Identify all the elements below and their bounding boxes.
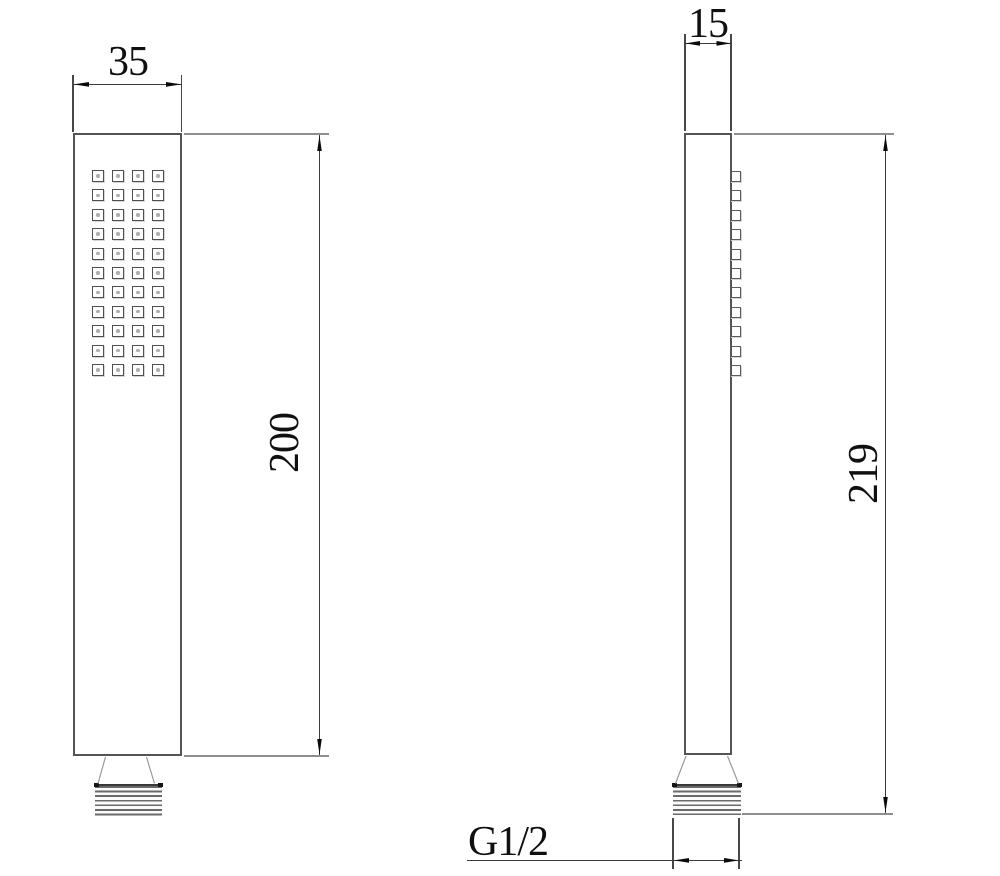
spray-hole (152, 170, 164, 182)
nozzle-square (730, 326, 742, 337)
spray-hole (152, 306, 164, 318)
spray-hole (92, 345, 104, 357)
nozzle-square (730, 287, 742, 298)
spray-hole (132, 364, 144, 376)
spray-hole (92, 267, 104, 279)
extension-line (734, 133, 894, 135)
nozzle-square (730, 365, 742, 376)
spray-hole (92, 170, 104, 182)
front-thread-connector (95, 784, 162, 816)
nozzle-column (730, 171, 742, 376)
spray-hole (152, 345, 164, 357)
extension-line (730, 34, 731, 131)
nozzle-square (730, 171, 742, 182)
spray-hole (152, 267, 164, 279)
spray-hole (152, 364, 164, 376)
dimension-label-thread-spec: G1/2 (468, 821, 598, 863)
spray-grid (92, 170, 164, 376)
extension-line (184, 133, 329, 135)
nozzle-square (730, 268, 742, 279)
extension-line (738, 818, 739, 869)
spray-hole (112, 228, 124, 240)
side-neck-outline (676, 756, 739, 784)
dimension-line-height-front (319, 135, 321, 755)
spray-hole (92, 364, 104, 376)
nozzle-square (730, 190, 742, 201)
spray-hole (152, 209, 164, 221)
spray-hole (132, 325, 144, 337)
side-thread-connector (673, 784, 741, 816)
extension-line (684, 34, 685, 131)
spray-hole (132, 228, 144, 240)
spray-hole (112, 345, 124, 357)
extension-line (184, 755, 329, 757)
spray-hole (132, 189, 144, 201)
dimension-arrowheads (74, 41, 888, 863)
spray-hole (92, 286, 104, 298)
side-view-body (684, 133, 732, 755)
spray-hole (152, 189, 164, 201)
dimension-label-side-depth: 15 (673, 3, 743, 45)
dimension-label-side-height: 219 (843, 434, 885, 514)
spray-hole (152, 248, 164, 260)
nozzle-square (730, 249, 742, 260)
spray-hole (132, 345, 144, 357)
spray-hole (132, 170, 144, 182)
front-neck-outline (98, 757, 155, 784)
spray-hole (92, 306, 104, 318)
dimension-label-front-width: 35 (93, 41, 163, 83)
spray-hole (92, 228, 104, 240)
spray-hole (112, 189, 124, 201)
nozzle-square (730, 210, 742, 221)
technical-drawing-canvas: 35 200 15 219 G1/2 (0, 0, 1000, 876)
spray-hole (152, 228, 164, 240)
nozzle-square (730, 229, 742, 240)
spray-hole (92, 248, 104, 260)
spray-hole (112, 267, 124, 279)
dimension-label-front-height: 200 (264, 403, 306, 483)
spray-hole (132, 248, 144, 260)
spray-hole (92, 325, 104, 337)
spray-hole (132, 267, 144, 279)
spray-hole (112, 325, 124, 337)
spray-hole (92, 189, 104, 201)
spray-hole (132, 286, 144, 298)
spray-hole (152, 286, 164, 298)
spray-hole (112, 248, 124, 260)
spray-hole (112, 286, 124, 298)
nozzle-square (730, 307, 742, 318)
spray-hole (112, 170, 124, 182)
spray-hole (132, 209, 144, 221)
spray-hole (112, 209, 124, 221)
extension-line (672, 818, 673, 869)
spray-hole (112, 306, 124, 318)
spray-hole (92, 209, 104, 221)
spray-hole (112, 364, 124, 376)
extension-line (742, 813, 893, 815)
nozzle-square (730, 346, 742, 357)
spray-hole (152, 325, 164, 337)
spray-hole (132, 306, 144, 318)
